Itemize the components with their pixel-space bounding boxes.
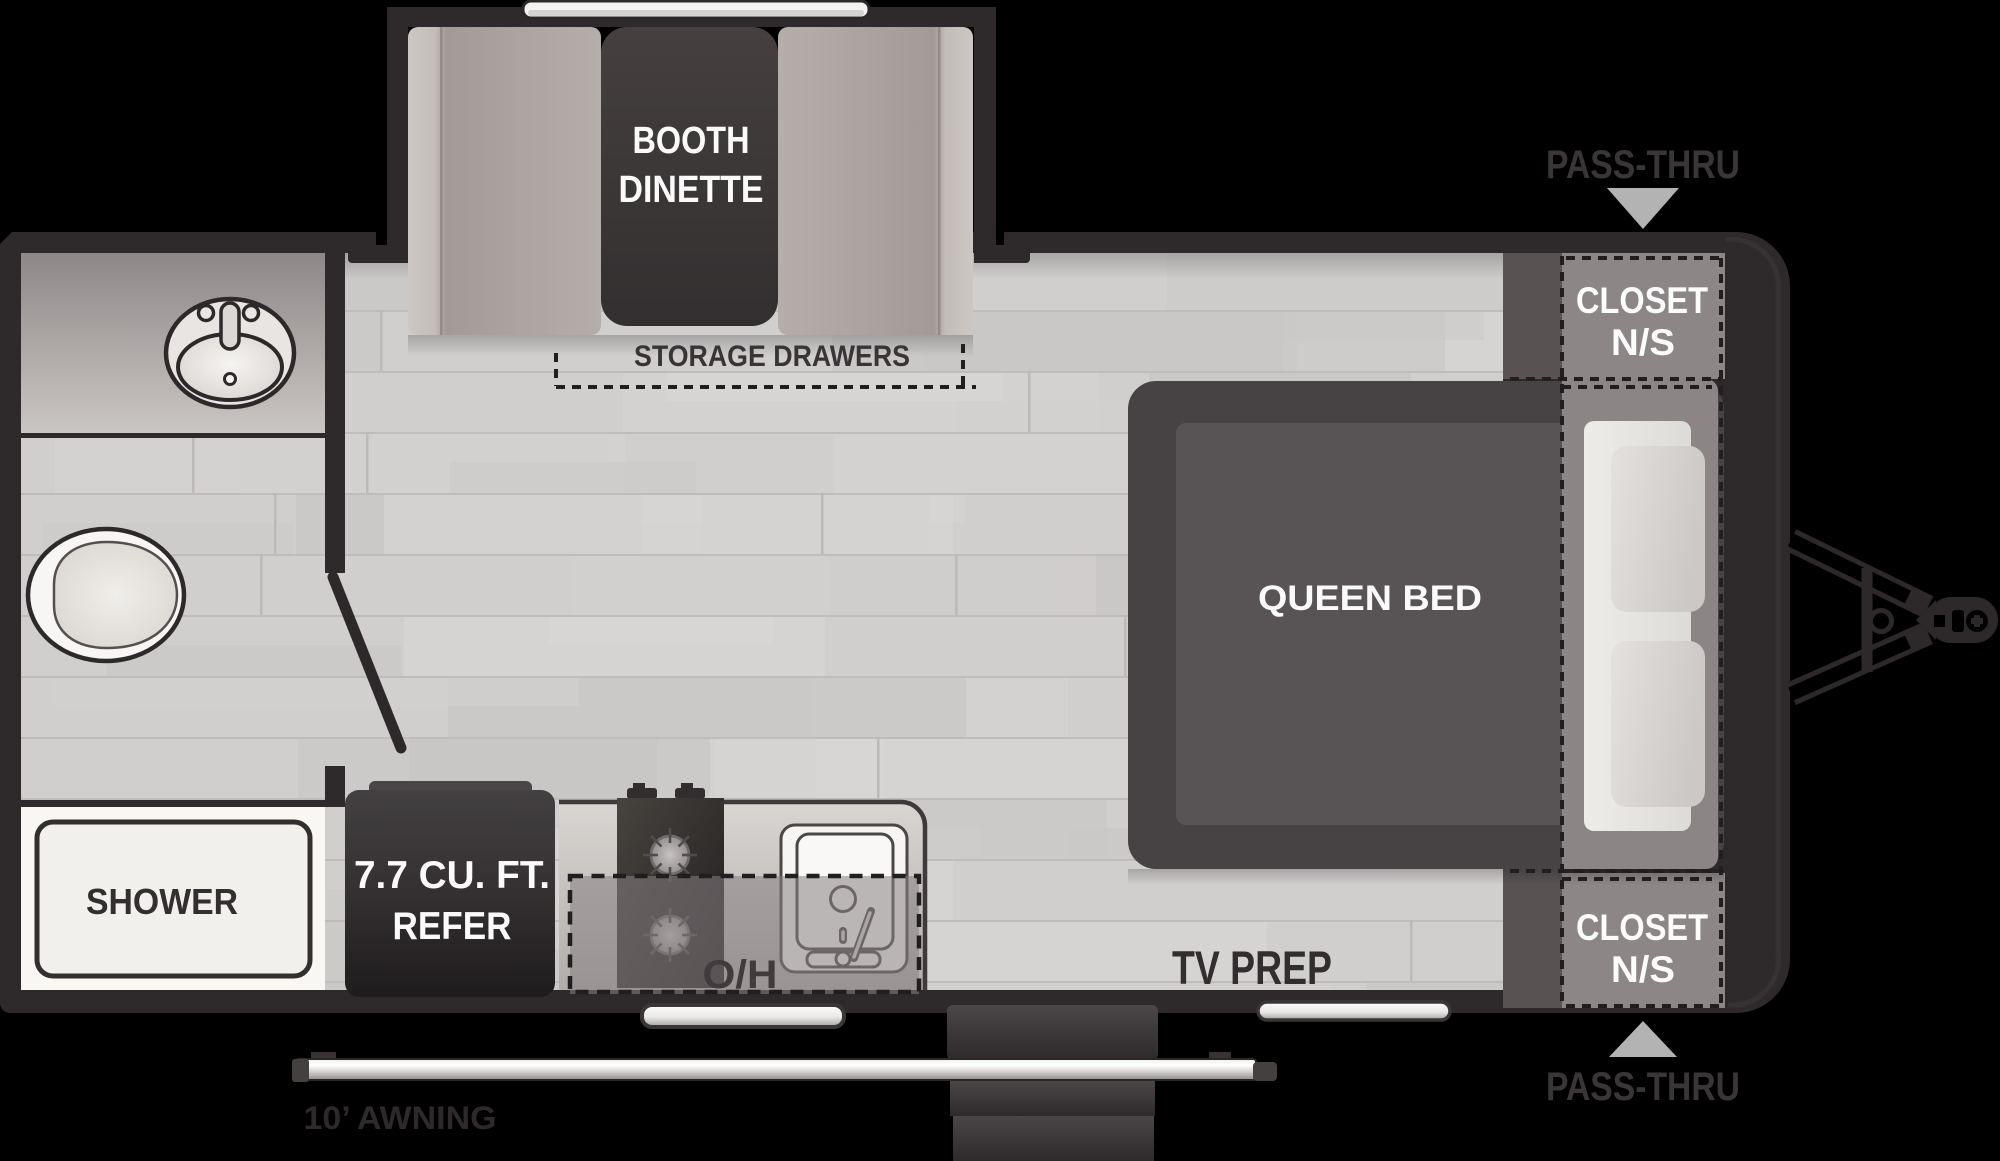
svg-text:7.7 CU. FT.: 7.7 CU. FT. xyxy=(354,854,550,897)
svg-text:10’ AWNING: 10’ AWNING xyxy=(304,1100,497,1136)
svg-text:PASS-THRU: PASS-THRU xyxy=(1546,143,1740,187)
svg-text:N/S: N/S xyxy=(1611,949,1675,990)
svg-text:CLOSET: CLOSET xyxy=(1576,907,1708,948)
svg-text:TV PREP: TV PREP xyxy=(1172,941,1332,994)
svg-text:QUEEN BED: QUEEN BED xyxy=(1258,579,1482,618)
svg-text:DINETTE: DINETTE xyxy=(619,169,764,211)
svg-text:SHOWER: SHOWER xyxy=(86,881,238,922)
svg-text:O/H: O/H xyxy=(703,953,778,997)
svg-text:REFER: REFER xyxy=(393,905,512,948)
svg-text:BOOTH: BOOTH xyxy=(633,120,750,162)
svg-text:STORAGE DRAWERS: STORAGE DRAWERS xyxy=(634,340,910,373)
svg-text:PASS-THRU: PASS-THRU xyxy=(1546,1065,1740,1109)
svg-text:CLOSET: CLOSET xyxy=(1576,280,1708,321)
svg-text:N/S: N/S xyxy=(1611,322,1675,363)
